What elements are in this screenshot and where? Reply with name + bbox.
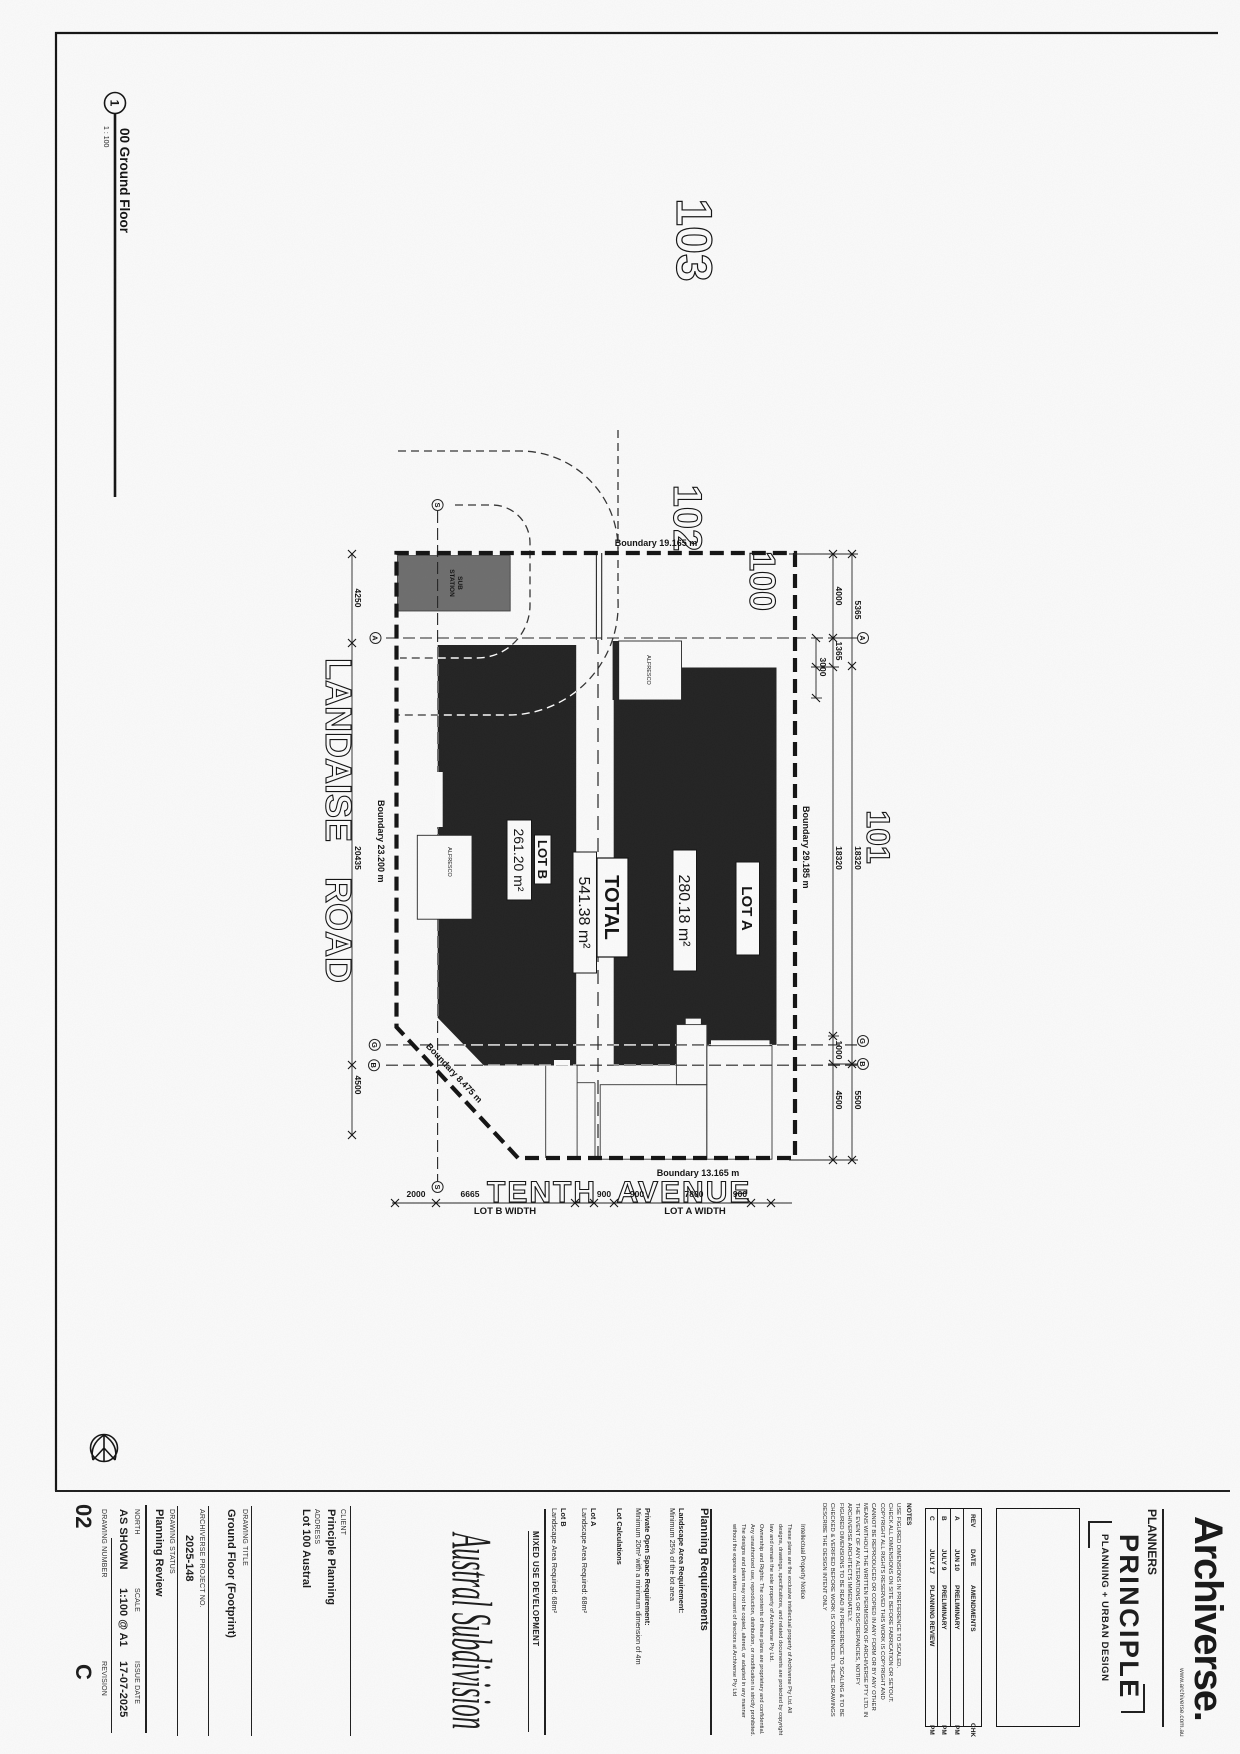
svg-text:G: G (858, 1038, 867, 1044)
svg-text:ROAD: ROAD (318, 877, 359, 983)
svg-text:LOT B WIDTH: LOT B WIDTH (474, 1206, 536, 1217)
svg-text:18320: 18320 (853, 846, 863, 870)
svg-text:S: S (433, 1184, 442, 1189)
svg-text:Boundary 29.185 m: Boundary 29.185 m (801, 806, 811, 889)
svg-text:3000: 3000 (818, 658, 828, 677)
svg-text:7800: 7800 (685, 1189, 704, 1199)
svg-text:280.18 m²: 280.18 m² (675, 874, 692, 947)
svg-text:SUB: SUB (456, 576, 463, 590)
svg-text:18320: 18320 (834, 846, 844, 870)
svg-text:Boundary 13.165 m: Boundary 13.165 m (657, 1168, 740, 1178)
svg-text:5365: 5365 (853, 601, 863, 620)
svg-text:Boundary 23.200 m: Boundary 23.200 m (376, 800, 386, 883)
svg-text:ALFRESCO: ALFRESCO (645, 655, 651, 685)
svg-text:103: 103 (666, 198, 722, 281)
svg-text:4500: 4500 (353, 1076, 363, 1095)
svg-text:B: B (858, 1061, 867, 1067)
svg-text:1000: 1000 (834, 1041, 844, 1060)
svg-text:20435: 20435 (353, 846, 363, 870)
svg-text:900: 900 (630, 1189, 644, 1199)
svg-text:4000: 4000 (834, 587, 844, 606)
svg-text:1: 1 (108, 100, 122, 107)
svg-text:B: B (369, 1062, 378, 1068)
svg-text:A: A (858, 635, 867, 641)
svg-text:G: G (370, 1042, 379, 1048)
svg-text:900: 900 (733, 1189, 747, 1199)
svg-text:LOT A: LOT A (738, 886, 755, 931)
svg-text:LOT A WIDTH: LOT A WIDTH (664, 1206, 726, 1217)
svg-text:LANDAISE: LANDAISE (318, 658, 359, 842)
svg-text:1 : 100: 1 : 100 (102, 126, 109, 148)
svg-text:ALFRESCO: ALFRESCO (446, 847, 452, 877)
svg-text:4250: 4250 (353, 589, 363, 608)
svg-text:STATION: STATION (448, 569, 455, 597)
svg-text:101: 101 (860, 810, 896, 863)
svg-text:TOTAL: TOTAL (600, 875, 622, 940)
svg-text:Boundary 19.165 m: Boundary 19.165 m (615, 538, 698, 548)
svg-text:TENTH: TENTH (487, 1176, 597, 1209)
svg-text:261.20 m²: 261.20 m² (511, 828, 527, 891)
svg-text:A: A (371, 635, 380, 641)
svg-text:6665: 6665 (461, 1189, 480, 1199)
svg-text:00 Ground Floor: 00 Ground Floor (117, 128, 132, 234)
svg-text:4500: 4500 (834, 1091, 844, 1110)
svg-text:LOT B: LOT B (535, 840, 550, 879)
svg-text:541.38 m²: 541.38 m² (575, 876, 592, 949)
svg-text:2000: 2000 (407, 1189, 426, 1199)
svg-text:1365: 1365 (834, 642, 844, 661)
svg-text:5500: 5500 (853, 1091, 863, 1110)
svg-text:900: 900 (597, 1189, 611, 1199)
svg-text:S: S (433, 502, 442, 507)
svg-text:100: 100 (742, 551, 783, 611)
